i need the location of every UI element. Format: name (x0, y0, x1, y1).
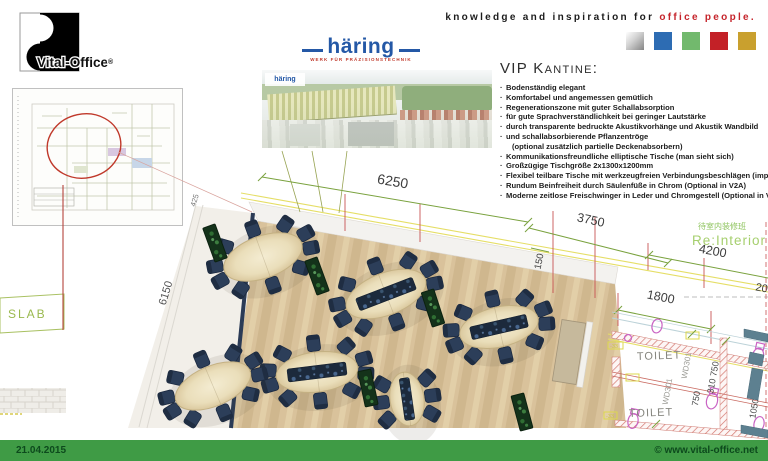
toilet-label-2: TOILET (629, 406, 674, 420)
chair (443, 323, 460, 337)
chair (306, 334, 321, 351)
slate-wall-chunks (741, 329, 768, 438)
tag-label-2: -33 (606, 414, 614, 420)
brand-name: Vital-Office® (37, 55, 114, 70)
chair (157, 389, 176, 405)
dim-4200: 4200 (698, 242, 728, 261)
toilet-dims: 750 310 750 1050 (690, 361, 761, 420)
chair (372, 395, 390, 410)
chair (215, 403, 233, 423)
cad-thumbnail-plan (12, 88, 183, 226)
vip-bullet-item: ·Regenerationszone mit guter Schallabsor… (500, 103, 766, 113)
chair (453, 303, 473, 321)
brochure-slide: Vital-Office® knowledge and inspiration … (0, 0, 768, 461)
palette-swatch-green (682, 32, 700, 50)
logo-bar-right (399, 49, 420, 52)
chair (183, 409, 202, 429)
vip-bullet-item: ·Flexibel teilbare Tische mit werkzeugfr… (500, 171, 766, 181)
footer-website: © www.vital-office.net (654, 445, 768, 456)
chair (278, 388, 299, 408)
section-title: VIP Kantine: (500, 60, 766, 77)
table-top (168, 352, 257, 420)
feature-list: ·Bodenständig elegant·Komfortabel und an… (500, 83, 766, 201)
wood-floor (229, 221, 626, 428)
vip-bullet-item: ·Moderne zeitlose Freischwinger in Leder… (500, 191, 766, 201)
chair (243, 351, 263, 371)
table-runner (287, 362, 347, 382)
chair (224, 343, 243, 363)
chair (445, 336, 465, 354)
re-interior-zh-label: 待室内装修班 (698, 221, 746, 231)
divider-wall (231, 213, 253, 428)
chair (399, 251, 419, 272)
chair (166, 370, 184, 386)
dim-1050: 1050 (747, 398, 760, 419)
re-interior-label: Re:Interior (692, 233, 766, 248)
chair (538, 317, 555, 331)
vip-bullet-item: ·und schallabsorbierende Pflanzentröge (500, 132, 766, 142)
dining-table-group (256, 328, 379, 417)
vip-bullet-item: ·durch transparente bedruckte Akustikvor… (500, 122, 766, 132)
sideboard (552, 318, 593, 388)
haering-wordmark: häring (327, 36, 394, 58)
haering-tagline: WERK FÜR PRÄZISIONSTECHNIK (293, 57, 429, 62)
table-top (217, 223, 308, 291)
table-top (456, 299, 543, 356)
dining-table-group (147, 330, 280, 444)
campus-aerial-photo: häring (262, 70, 492, 148)
tag-label-1: -33 (610, 344, 618, 350)
tagline-highlight: office people. (659, 12, 756, 23)
chair (534, 300, 554, 318)
brick-hatch (0, 388, 66, 413)
dim-150: 150 (533, 253, 547, 271)
chair (336, 336, 357, 356)
chair (354, 317, 374, 338)
table-top (339, 259, 432, 328)
chair (272, 344, 292, 363)
tick-marks (652, 330, 730, 428)
wd301-label-1: WD301 (661, 377, 675, 405)
chair (388, 312, 406, 332)
chair (206, 258, 224, 274)
chair (417, 368, 437, 389)
chair (302, 240, 320, 256)
door-labels: WD301 WD301 (661, 351, 694, 405)
vital-office-logo: Vital-Office® (18, 10, 146, 76)
dining-table-group (318, 238, 455, 353)
toilet-cad-area: -33 -33 TOILET TOILET WD301 WD301 750 31… (604, 312, 768, 439)
chair (210, 271, 230, 290)
dining-table-group (436, 278, 563, 377)
chair (372, 375, 392, 394)
chair (313, 392, 328, 409)
palette-swatch-gold (738, 32, 756, 50)
chair (241, 386, 259, 402)
table-runner (469, 314, 528, 340)
palette-swatch-blue (654, 32, 672, 50)
chair (260, 364, 276, 377)
planter (358, 369, 378, 407)
toilet-label-1: TOILET (637, 349, 682, 363)
dim-1800: 1800 (646, 288, 676, 307)
table-top (274, 347, 360, 397)
dim-310-750: 310 750 (705, 361, 720, 395)
palette-swatch-silver (626, 32, 644, 50)
dim-3750: 3750 (576, 210, 606, 229)
chair (292, 259, 311, 276)
chair (355, 350, 374, 367)
chair (250, 366, 269, 382)
chair (422, 404, 442, 423)
chair (261, 377, 280, 394)
chair (525, 333, 545, 351)
dim-200: 200 (754, 281, 768, 296)
vip-bullet-item: ·Komfortabel und angemessen gemütlich (500, 93, 766, 103)
palette-swatch-red (710, 32, 728, 50)
chair (484, 289, 500, 308)
chair (463, 345, 483, 366)
dim-425: 425 (188, 193, 200, 208)
table-runner (355, 277, 416, 311)
chair (231, 279, 251, 300)
dining-table-group (369, 361, 447, 450)
planter (421, 289, 444, 327)
chair (296, 224, 316, 243)
toilet-fixtures (625, 318, 767, 432)
left-wall-lines (139, 204, 203, 428)
chair (193, 349, 211, 369)
vip-bullet-item: ·Bodenständig elegant (500, 83, 766, 93)
planter (305, 257, 330, 295)
slab-label: SLAB (8, 307, 47, 321)
chair (366, 256, 384, 276)
chair (358, 367, 374, 380)
outside-floor (128, 206, 253, 428)
haering-logo: häring WERK FÜR PRÄZISIONSTECHNIK (293, 36, 429, 62)
chair (328, 296, 346, 312)
chair (216, 238, 235, 255)
vip-bullet-item: ·Rundum Beinfreiheit durch Säulenfüße in… (500, 181, 766, 191)
chair (419, 259, 439, 278)
vip-bullet-item: ·Großzügige Tischgröße 2x1300x1200mm (500, 161, 766, 171)
planter (511, 393, 533, 431)
footer-bar: 21.04.2015 © www.vital-office.net (0, 440, 768, 461)
logo-bar-left (302, 49, 323, 52)
wall-hatch (612, 331, 768, 439)
dim-6250: 6250 (376, 171, 410, 192)
furniture-layer (147, 202, 593, 450)
tagline-prefix: knowledge and inspiration for (445, 12, 659, 23)
chair (341, 381, 361, 400)
chair (497, 346, 513, 365)
table-top (386, 370, 427, 428)
dim-6150: 6150 (157, 280, 176, 307)
chair (377, 410, 397, 431)
slab-box (0, 294, 64, 333)
vip-kantine-section: VIP Kantine: ·Bodenständig elegant·Komfo… (500, 60, 766, 201)
photo-tint (262, 70, 492, 148)
vip-bullet-item: ·für gute Sprachverständlichkeit bei ger… (500, 112, 766, 122)
extension-ticks-red (345, 194, 711, 344)
top-wall-band (249, 202, 618, 284)
vip-bullet-item: (optional zusätzlich partielle Deckenabs… (500, 142, 766, 152)
planter (203, 224, 228, 262)
chair (244, 219, 262, 238)
floors (128, 202, 626, 428)
table-runner (399, 377, 415, 420)
leader-lines (282, 151, 347, 213)
header-tagline: knowledge and inspiration for office peo… (445, 12, 756, 23)
chair (416, 295, 435, 311)
chair (275, 214, 295, 235)
chair (338, 276, 357, 292)
chair (162, 402, 182, 422)
yellow-tags (604, 332, 699, 419)
chair (515, 288, 535, 309)
chair (333, 309, 353, 328)
dining-table-group (196, 202, 330, 314)
chair (264, 275, 282, 294)
chair (424, 388, 442, 403)
dim-750: 750 (690, 390, 702, 407)
chair (426, 276, 444, 292)
wd301-label-2: WD301 (680, 351, 694, 379)
vip-bullet-item: ·Kommunikationsfreundliche elliptische T… (500, 152, 766, 162)
footer-date: 21.04.2015 (0, 445, 66, 456)
wall-lines-yellow (241, 193, 768, 371)
color-palette (626, 32, 756, 50)
